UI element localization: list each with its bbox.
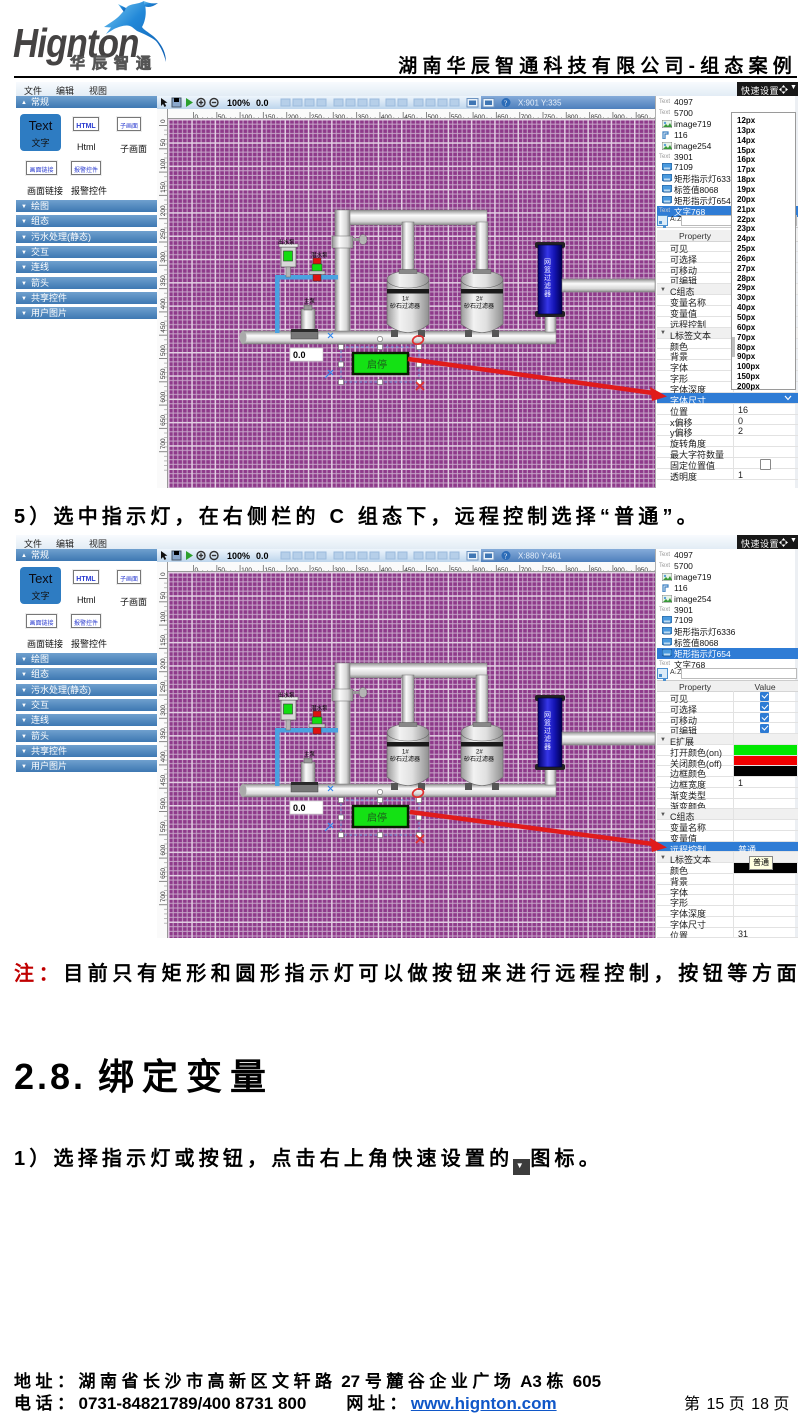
svg-text:华辰智通: 华辰智通	[70, 54, 158, 72]
